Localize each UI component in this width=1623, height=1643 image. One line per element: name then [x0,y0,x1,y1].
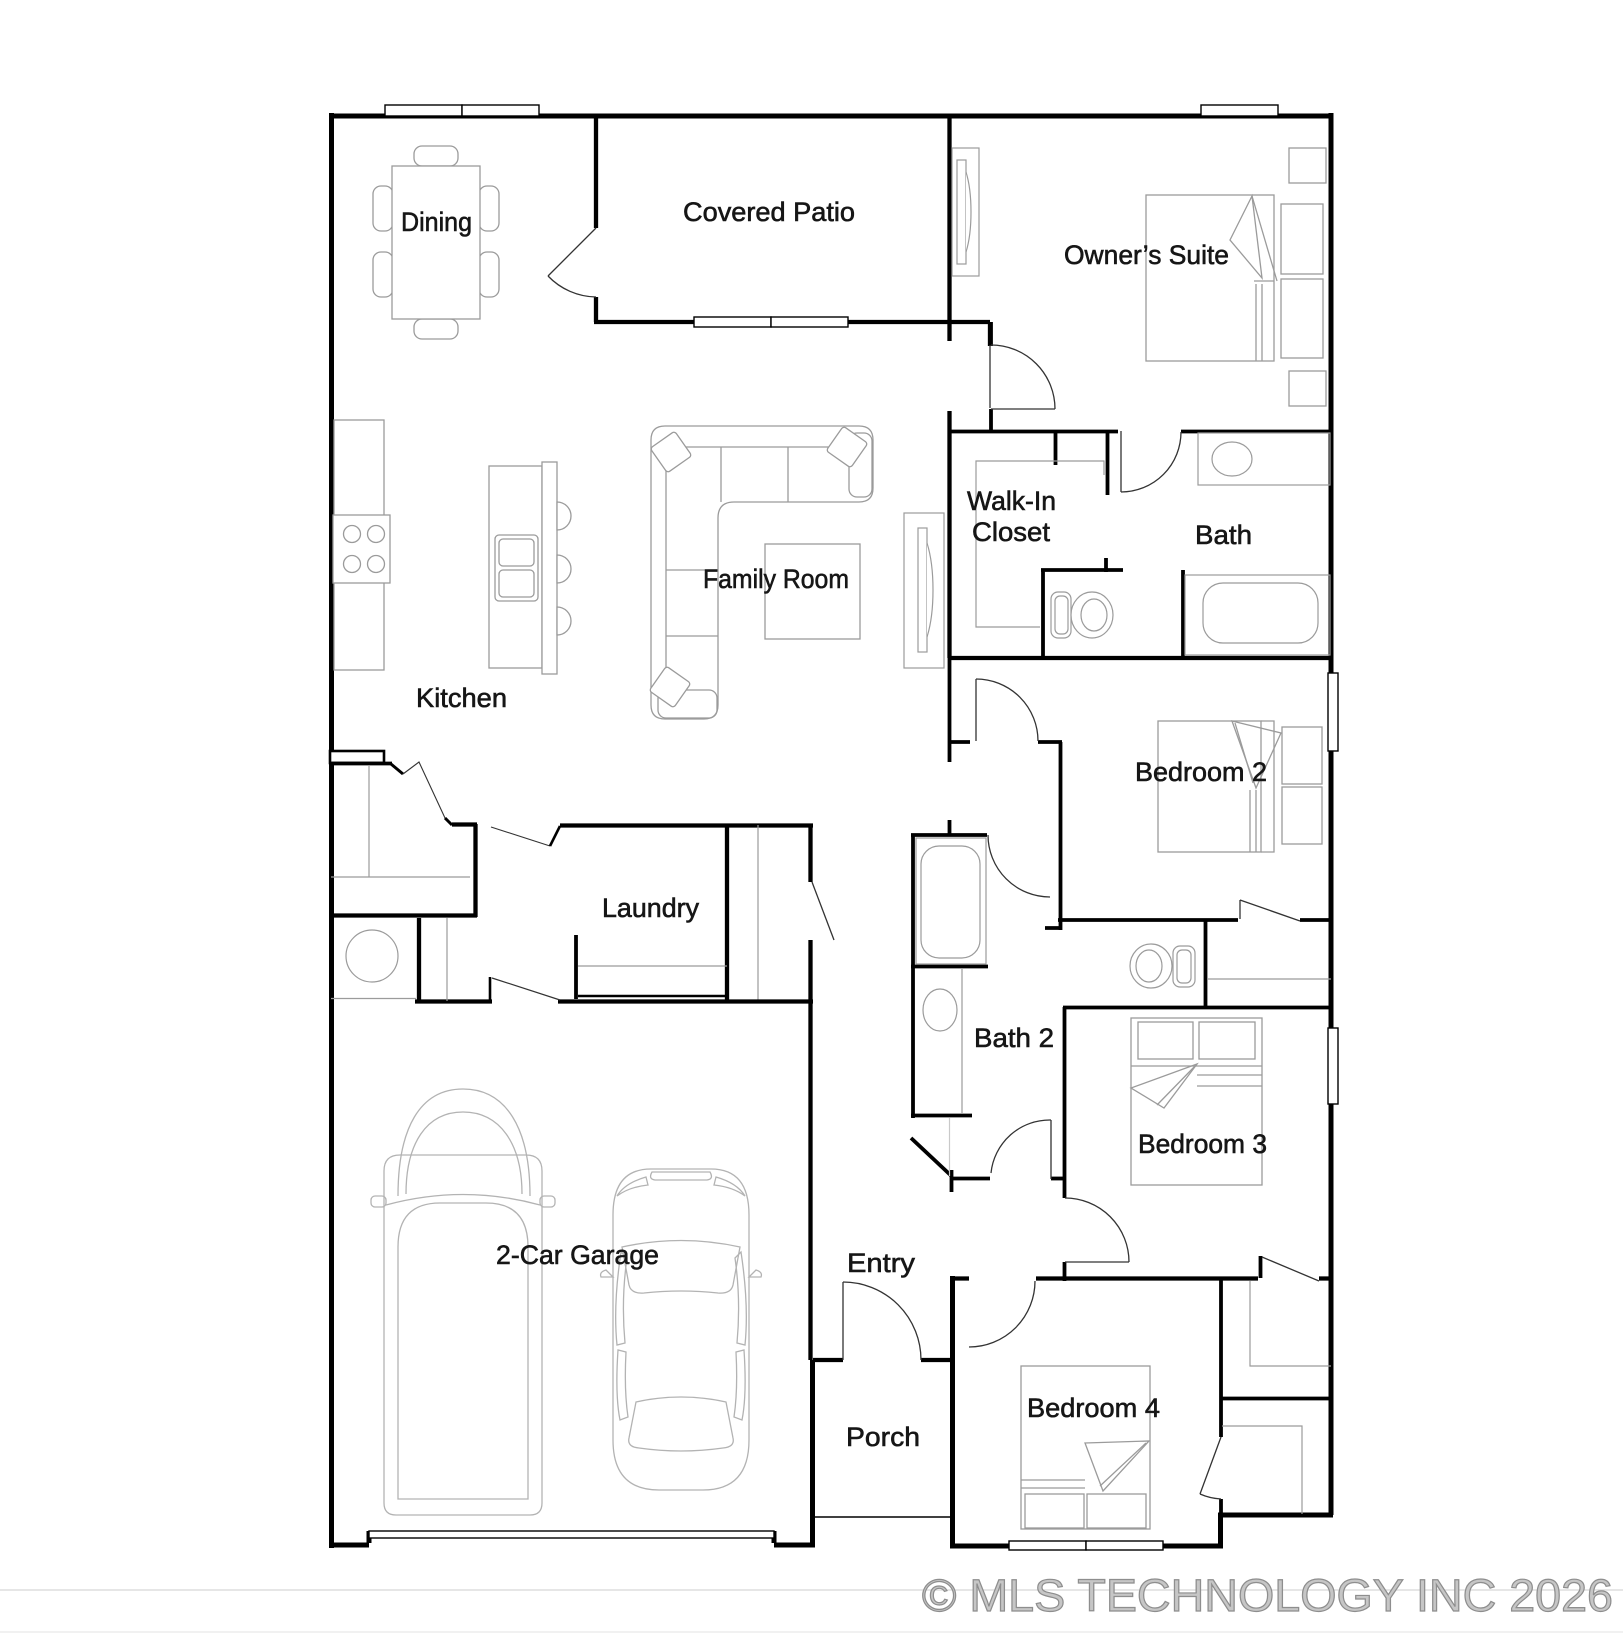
svg-text:Bath: Bath [1195,520,1252,550]
svg-text:Closet: Closet [972,517,1051,547]
svg-text:Porch: Porch [846,1422,920,1452]
svg-text:© MLS TECHNOLOGY INC 2026: © MLS TECHNOLOGY INC 2026 [922,1570,1613,1621]
svg-text:Bath 2: Bath 2 [974,1023,1054,1053]
svg-text:Bedroom 4: Bedroom 4 [1027,1393,1160,1423]
svg-text:Bedroom 2: Bedroom 2 [1135,757,1267,787]
svg-text:Walk-In: Walk-In [967,486,1056,516]
svg-text:2-Car Garage: 2-Car Garage [496,1240,659,1270]
svg-text:Bedroom 3: Bedroom 3 [1138,1129,1267,1159]
svg-text:Kitchen: Kitchen [416,683,507,713]
svg-text:Entry: Entry [847,1248,916,1278]
svg-text:Covered Patio: Covered Patio [683,197,855,227]
svg-text:Family Room: Family Room [703,564,849,594]
svg-text:Owner’s Suite: Owner’s Suite [1064,240,1229,270]
svg-text:Laundry: Laundry [602,893,699,923]
svg-text:Dining: Dining [401,207,472,237]
